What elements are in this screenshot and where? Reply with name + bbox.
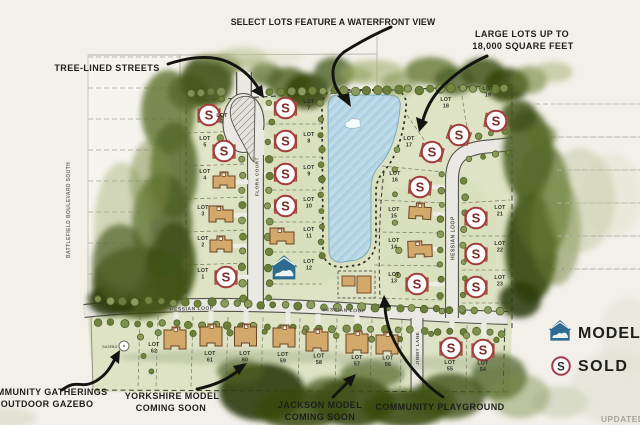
svg-text:S: S: [416, 180, 425, 195]
svg-text:JIMMY LANE: JIMMY LANE: [415, 332, 420, 365]
svg-text:S: S: [413, 277, 422, 292]
svg-text:JACKSON MODEL: JACKSON MODEL: [278, 400, 362, 410]
svg-text:COMMUNITY PLAYGROUND: COMMUNITY PLAYGROUND: [375, 402, 504, 412]
svg-text:S: S: [472, 247, 481, 262]
svg-text:COMMUNITY GATHERINGS: COMMUNITY GATHERINGS: [0, 387, 108, 397]
svg-text:S: S: [472, 211, 481, 226]
svg-text:S: S: [455, 128, 464, 143]
svg-text:S: S: [222, 270, 231, 285]
svg-text:YORKSHIRE MODEL: YORKSHIRE MODEL: [125, 391, 220, 401]
svg-text:S: S: [281, 167, 290, 182]
svg-text:S: S: [492, 114, 501, 129]
svg-text:THE OUTDOOR GAZEBO: THE OUTDOOR GAZEBO: [0, 399, 93, 409]
svg-text:S: S: [220, 144, 229, 159]
svg-text:MODEL: MODEL: [578, 325, 640, 342]
svg-text:GAZEBO: GAZEBO: [102, 345, 118, 349]
svg-text:S: S: [557, 362, 565, 374]
svg-text:FLORA COURT: FLORA COURT: [255, 157, 260, 196]
svg-text:S: S: [281, 134, 290, 149]
svg-text:S: S: [447, 341, 456, 356]
svg-text:COMING SOON: COMING SOON: [285, 412, 355, 422]
svg-text:S: S: [281, 101, 290, 116]
svg-text:S: S: [428, 145, 437, 160]
svg-text:S: S: [472, 280, 481, 295]
svg-text:SELECT LOTS FEATURE A WATERFRO: SELECT LOTS FEATURE A WATERFRONT VIEW: [231, 17, 436, 27]
svg-text:18,000 SQUARE FEET: 18,000 SQUARE FEET: [472, 41, 573, 51]
svg-text:HESSIAN LOOP: HESSIAN LOOP: [451, 216, 457, 260]
svg-text:S: S: [205, 108, 214, 123]
svg-text:TREE-LINED STREETS: TREE-LINED STREETS: [54, 63, 159, 73]
svg-text:COMING SOON: COMING SOON: [136, 403, 206, 413]
svg-text:S: S: [281, 199, 290, 214]
svg-text:BATTLEFIELD BOULEVARD SOUTH: BATTLEFIELD BOULEVARD SOUTH: [66, 162, 72, 258]
svg-text:SOLD: SOLD: [578, 358, 628, 375]
svg-text:S: S: [479, 343, 488, 358]
svg-text:LARGE LOTS UP TO: LARGE LOTS UP TO: [475, 29, 569, 39]
svg-text:UPDATED: UPDATED: [601, 414, 640, 424]
